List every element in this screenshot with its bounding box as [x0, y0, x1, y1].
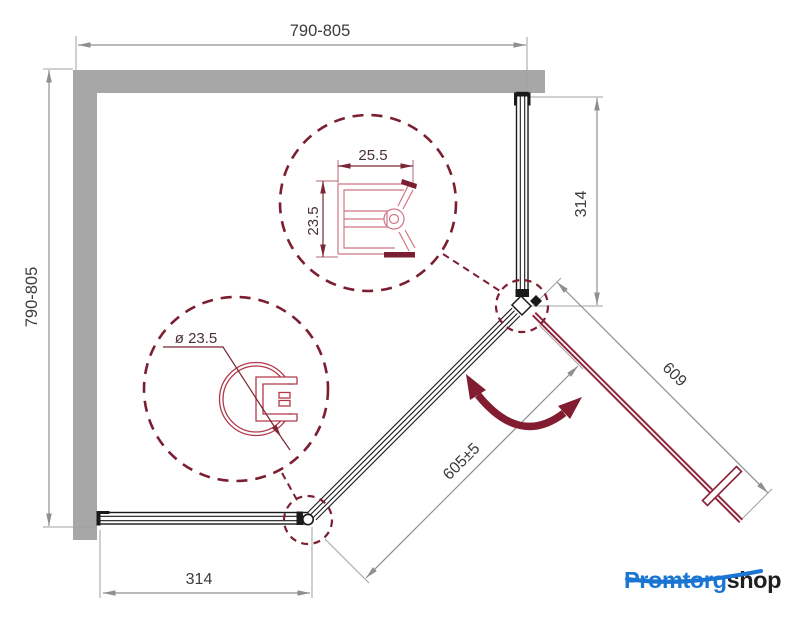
floor-plan-drawing: 790-805 790-805 314 314 609 605±5 25.5 2…: [0, 0, 792, 624]
dim-opening-label: 605±5: [440, 440, 483, 483]
leader-top: [443, 254, 500, 291]
wall-left: [73, 70, 97, 540]
wall-top: [73, 70, 545, 93]
dimension-labels: 790-805 790-805 314 314 609 605±5 25.5 2…: [23, 22, 690, 588]
detail-circle-bottom: [144, 297, 328, 481]
fixed-panel-right: [514, 93, 531, 298]
wall-profile-section: [316, 160, 417, 258]
door-swing-arrow-icon: [466, 374, 582, 426]
fixed-panel-diagonal: [308, 308, 520, 520]
logo-swoosh-icon: [624, 568, 766, 584]
leader-bottom: [282, 473, 297, 500]
dim-bottom-label: 314: [186, 571, 213, 588]
profile-width-label: 25.5: [358, 147, 387, 164]
corner-joint-top: [512, 295, 542, 315]
detail-circle-top: [280, 115, 456, 291]
floor-plan-page: 790-805 790-805 314 314 609 605±5 25.5 2…: [0, 0, 792, 624]
fixed-panel-bottom: [97, 511, 310, 526]
dim-door-label: 609: [659, 359, 690, 390]
round-profile-section: [163, 347, 298, 450]
corner-joint-bottom: [303, 514, 313, 524]
dim-left-label: 790-805: [23, 267, 41, 328]
dim-right-label: 314: [573, 191, 590, 218]
dim-door-line: [557, 282, 768, 493]
dim-top-label: 790-805: [290, 22, 351, 40]
wall-profile-ext-lines: [316, 160, 413, 257]
dimension-lines: [49, 45, 768, 593]
profile-height-label: 23.5: [305, 206, 322, 235]
logo: Promtorgshop: [624, 568, 782, 593]
profile-diameter-label: ø 23.5: [175, 330, 218, 347]
